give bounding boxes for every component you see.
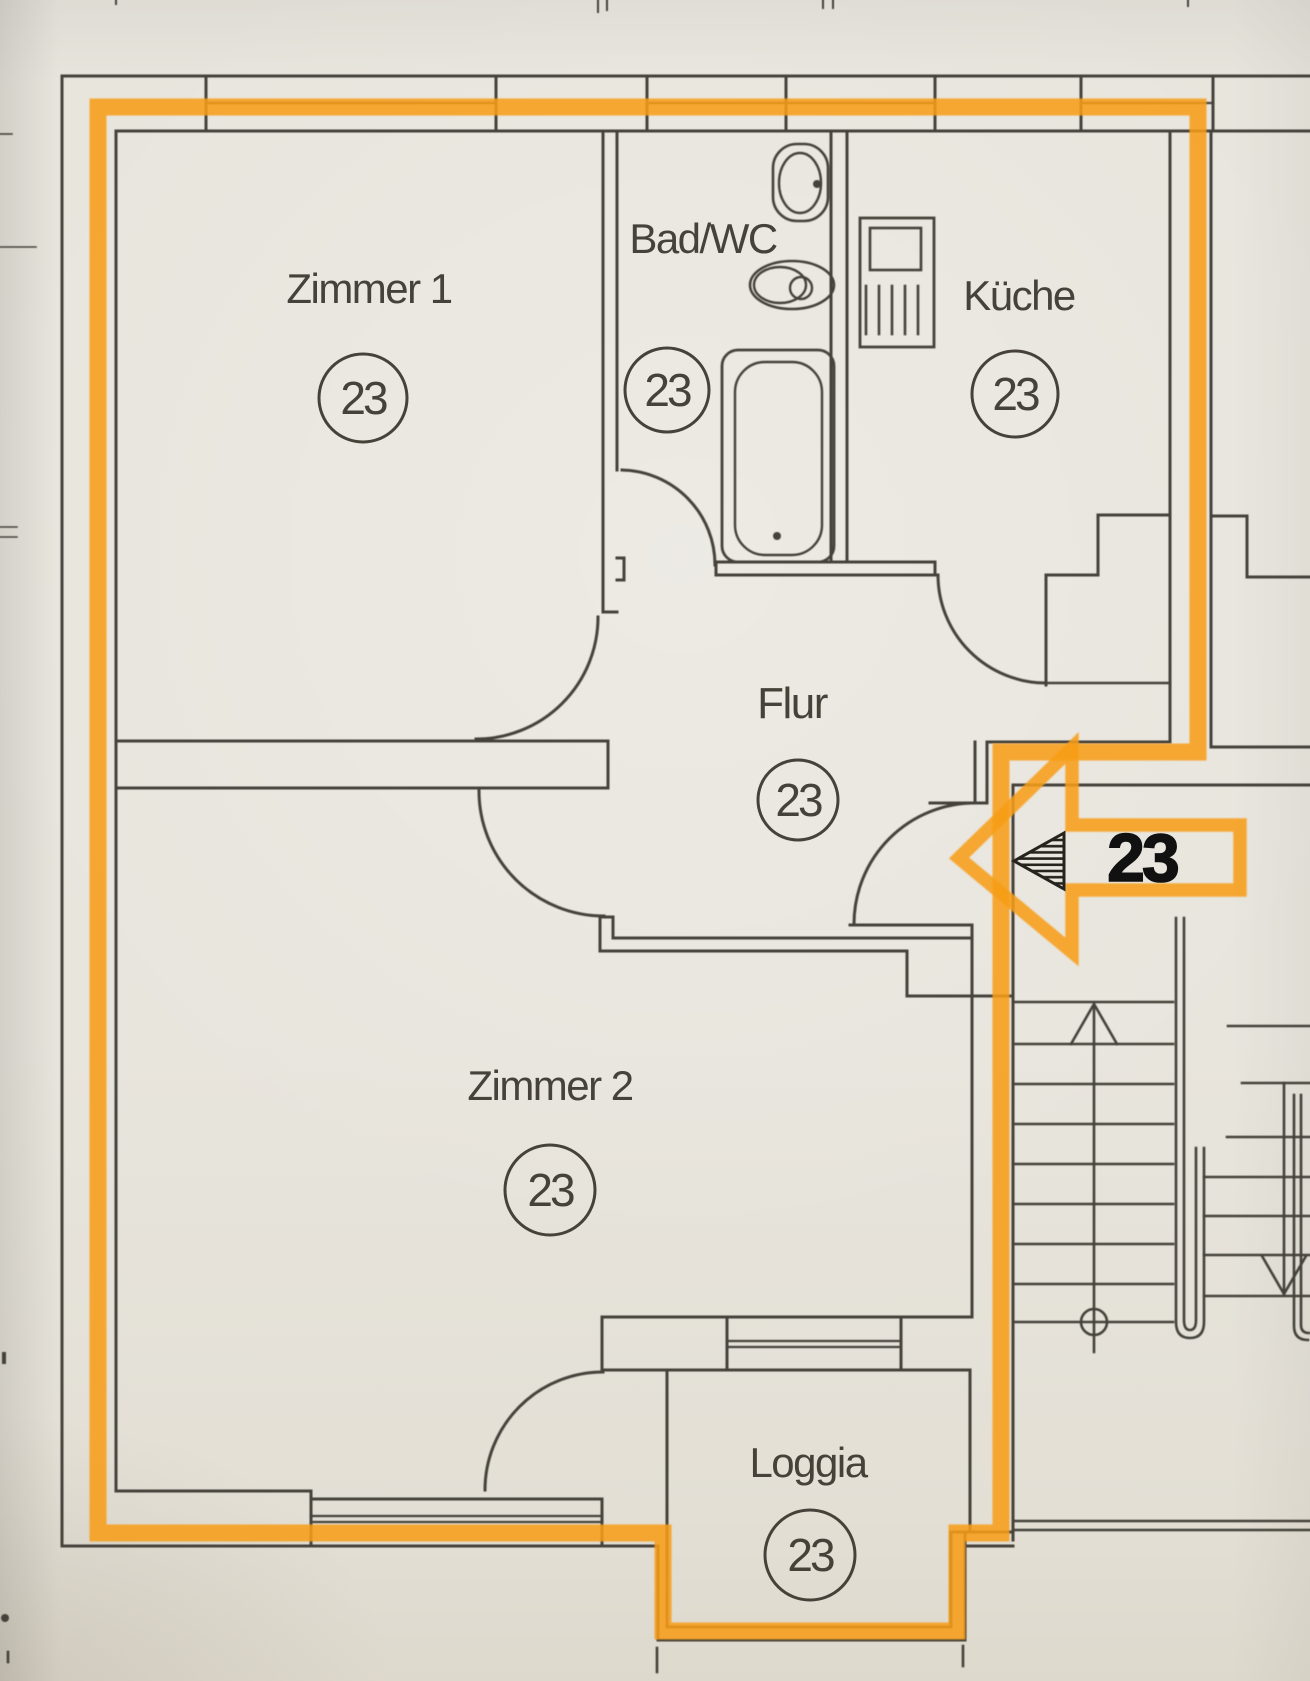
svg-text:Flur: Flur	[757, 679, 828, 728]
svg-text:Loggia: Loggia	[749, 1439, 868, 1486]
svg-text:23: 23	[527, 1164, 574, 1216]
svg-text:23: 23	[340, 372, 387, 424]
svg-text:23: 23	[992, 368, 1039, 420]
svg-text:23: 23	[775, 774, 822, 826]
svg-text:Zimmer 1: Zimmer 1	[286, 265, 451, 312]
svg-text:23: 23	[787, 1529, 834, 1581]
svg-text:23: 23	[1107, 820, 1178, 896]
svg-text:23: 23	[644, 364, 691, 416]
svg-text:Küche: Küche	[963, 272, 1075, 319]
svg-text:Zimmer 2: Zimmer 2	[467, 1062, 632, 1109]
svg-text:Bad/WC: Bad/WC	[629, 215, 777, 262]
